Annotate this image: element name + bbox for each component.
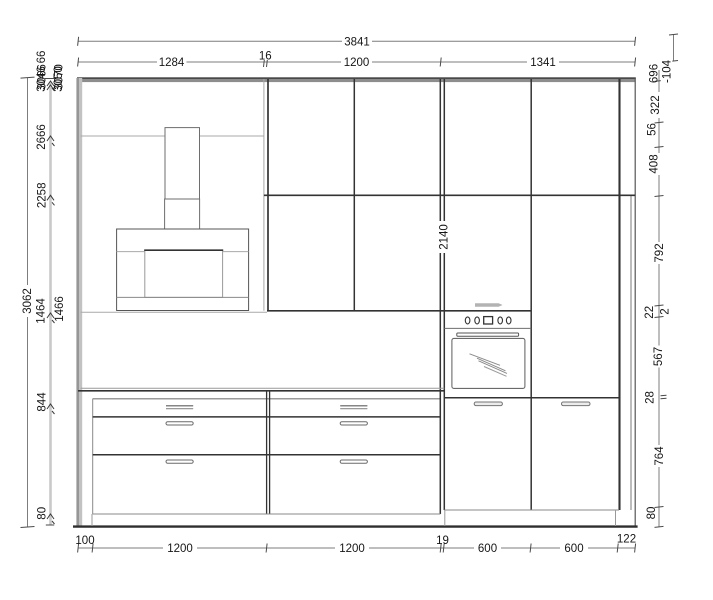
svg-text:2140: 2140 — [439, 224, 451, 250]
svg-text:1200: 1200 — [339, 543, 365, 555]
svg-text:2666: 2666 — [36, 124, 48, 150]
svg-text:2: 2 — [659, 308, 671, 314]
svg-text:66: 66 — [36, 51, 48, 64]
svg-text:567: 567 — [653, 347, 665, 366]
svg-text:696: 696 — [648, 64, 660, 83]
svg-text:28: 28 — [644, 391, 656, 404]
svg-text:764: 764 — [654, 446, 666, 466]
svg-text:1466: 1466 — [54, 296, 66, 322]
svg-text:844: 844 — [36, 392, 48, 412]
svg-text:3066: 3066 — [36, 64, 48, 90]
svg-text:3841: 3841 — [344, 36, 370, 48]
svg-text:1284: 1284 — [159, 57, 185, 69]
svg-text:1464: 1464 — [35, 298, 47, 324]
svg-text:56: 56 — [646, 123, 658, 136]
svg-text:1200: 1200 — [344, 57, 370, 69]
svg-text:322: 322 — [650, 95, 662, 114]
svg-text:408: 408 — [649, 154, 661, 173]
svg-text:80: 80 — [646, 507, 658, 520]
svg-text:19: 19 — [436, 535, 449, 547]
svg-text:600: 600 — [564, 543, 583, 555]
svg-text:1200: 1200 — [167, 543, 193, 555]
svg-text:600: 600 — [478, 543, 497, 555]
svg-text:-104: -104 — [661, 59, 673, 83]
svg-text:792: 792 — [654, 243, 666, 262]
svg-text:1341: 1341 — [530, 57, 556, 69]
svg-text:3062: 3062 — [22, 288, 34, 314]
svg-text:122: 122 — [617, 534, 636, 546]
svg-text:22: 22 — [644, 306, 656, 319]
svg-text:3070: 3070 — [54, 64, 66, 90]
svg-text:80: 80 — [36, 507, 48, 520]
svg-text:100: 100 — [75, 535, 94, 547]
svg-text:16: 16 — [259, 51, 272, 63]
svg-text:2258: 2258 — [37, 183, 49, 209]
